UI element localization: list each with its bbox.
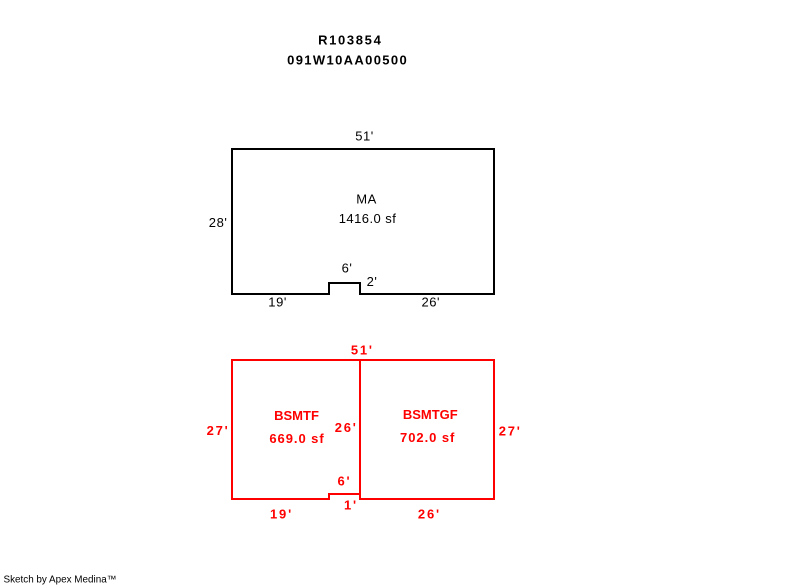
svg-text:19': 19' [270, 507, 293, 522]
svg-text:26': 26' [422, 295, 441, 310]
svg-text:51': 51' [351, 342, 374, 357]
svg-text:6': 6' [342, 261, 353, 276]
svg-text:BSMTGF: BSMTGF [403, 407, 458, 422]
svg-text:R103854: R103854 [318, 33, 382, 48]
svg-text:2': 2' [367, 274, 378, 289]
svg-text:669.0 sf: 669.0 sf [269, 431, 324, 446]
svg-text:26': 26' [335, 420, 358, 435]
svg-text:28': 28' [209, 215, 228, 230]
svg-text:702.0 sf: 702.0 sf [400, 430, 455, 445]
svg-text:1416.0 sf: 1416.0 sf [339, 211, 397, 226]
svg-text:BSMTF: BSMTF [274, 408, 319, 423]
svg-text:27': 27' [207, 423, 230, 438]
svg-text:27': 27' [499, 423, 522, 438]
svg-text:26': 26' [418, 507, 441, 522]
svg-text:MA: MA [356, 192, 376, 207]
svg-text:091W10AA00500: 091W10AA00500 [287, 53, 408, 68]
svg-text:1': 1' [344, 498, 358, 513]
svg-text:Sketch by Apex Medina™: Sketch by Apex Medina™ [4, 575, 117, 586]
svg-text:6': 6' [338, 474, 352, 489]
svg-text:19': 19' [268, 295, 287, 310]
svg-text:51': 51' [355, 129, 374, 144]
